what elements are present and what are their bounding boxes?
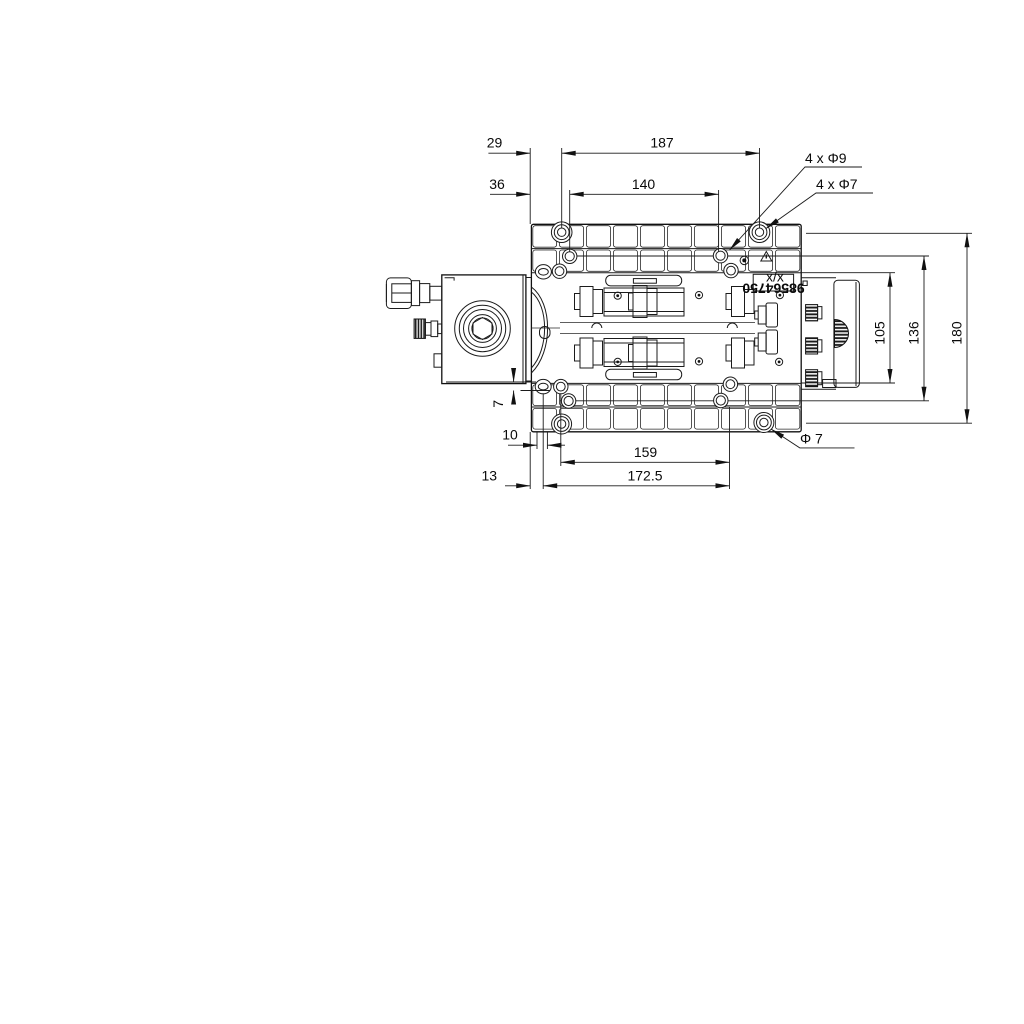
svg-text:140: 140 (632, 176, 656, 192)
svg-text:36: 36 (489, 176, 505, 192)
svg-text:172.5: 172.5 (627, 467, 662, 483)
svg-text:13: 13 (482, 467, 498, 483)
svg-text:4 x Φ9: 4 x Φ9 (805, 150, 847, 166)
svg-text:159: 159 (634, 444, 658, 460)
svg-text:187: 187 (650, 135, 674, 151)
svg-text:180: 180 (949, 321, 965, 345)
svg-text:Φ 7: Φ 7 (800, 431, 823, 447)
svg-text:4 x Φ7: 4 x Φ7 (816, 176, 858, 192)
svg-text:136: 136 (906, 321, 922, 345)
svg-text:29: 29 (487, 135, 503, 151)
svg-text:98564750: 98564750 (742, 281, 805, 297)
svg-text:105: 105 (872, 321, 888, 345)
svg-text:10: 10 (502, 427, 518, 443)
svg-text:7: 7 (490, 400, 506, 408)
